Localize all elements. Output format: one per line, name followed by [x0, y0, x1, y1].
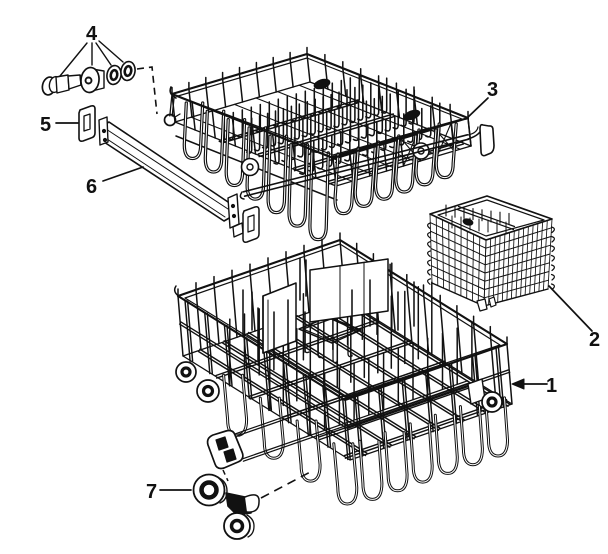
svg-text:4: 4 — [86, 23, 98, 45]
svg-text:3: 3 — [487, 79, 498, 101]
svg-text:6: 6 — [86, 176, 97, 198]
svg-text:5: 5 — [40, 114, 51, 136]
svg-text:2: 2 — [589, 329, 600, 351]
svg-text:7: 7 — [146, 481, 157, 503]
svg-text:1: 1 — [546, 375, 557, 397]
